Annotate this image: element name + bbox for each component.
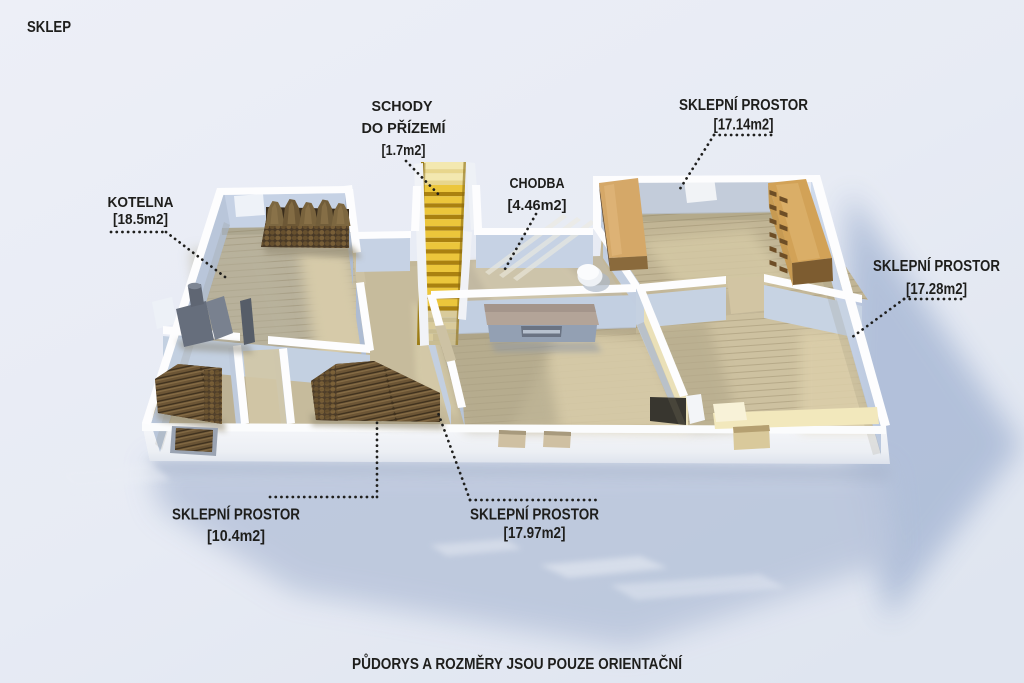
svg-text:[17.28m2]: [17.28m2]	[906, 281, 967, 298]
svg-text:SKLEP: SKLEP	[27, 19, 71, 36]
svg-text:[4.46m2]: [4.46m2]	[508, 197, 567, 214]
svg-text:SKLEPNÍ PROSTOR: SKLEPNÍ PROSTOR	[679, 95, 809, 114]
svg-text:SKLEPNÍ PROSTOR: SKLEPNÍ PROSTOR	[172, 505, 300, 524]
svg-text:SKLEPNÍ PROSTOR: SKLEPNÍ PROSTOR	[873, 256, 1000, 275]
svg-text:[17.97m2]: [17.97m2]	[504, 525, 566, 542]
svg-text:[1.7m2]: [1.7m2]	[382, 142, 426, 159]
svg-text:PŮDORYS A ROZMĚRY JSOU POUZE O: PŮDORYS A ROZMĚRY JSOU POUZE ORIENTAČNÍ	[352, 654, 683, 673]
svg-text:DO PŘÍZEMÍ: DO PŘÍZEMÍ	[362, 119, 447, 137]
svg-text:[18.5m2]: [18.5m2]	[113, 212, 168, 228]
svg-text:[17.14m2]: [17.14m2]	[714, 117, 774, 134]
svg-text:SCHODY: SCHODY	[372, 98, 433, 115]
svg-text:[10.4m2]: [10.4m2]	[207, 528, 265, 545]
svg-text:CHODBA: CHODBA	[510, 175, 565, 192]
svg-text:KOTELNA: KOTELNA	[108, 195, 174, 211]
svg-text:SKLEPNÍ PROSTOR: SKLEPNÍ PROSTOR	[470, 505, 600, 524]
